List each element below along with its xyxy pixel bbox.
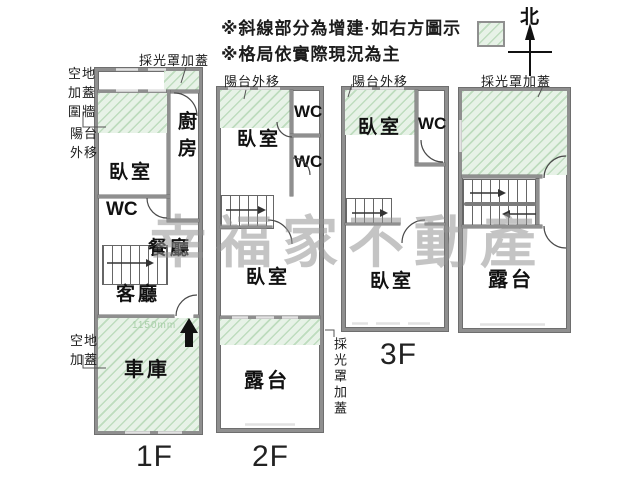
- stairs: [462, 179, 538, 227]
- room-label-garage: 車庫: [124, 353, 170, 382]
- note-hatched-addition: ※斜線部分為增建·如右方圖示: [221, 14, 461, 39]
- room-label-bedroom: 臥室: [109, 157, 153, 184]
- note-line: 空地: [68, 64, 96, 83]
- floor3-label: 3F: [380, 338, 417, 372]
- wall: [425, 223, 445, 225]
- floor1-balcony-hatch: [98, 93, 167, 133]
- north-arrow: [508, 23, 552, 76]
- wall: [536, 179, 539, 225]
- wall: [462, 175, 542, 178]
- stairs: [220, 195, 274, 229]
- wall: [167, 219, 199, 222]
- floorplan-page: { "notes": { "line1": "※斜線部分為增建·如右方圖示", …: [0, 0, 640, 480]
- note-line: 陽台: [70, 124, 98, 143]
- floor2-skylight-note: 採光罩加蓋: [330, 337, 349, 421]
- legend-hatch-swatch: [477, 21, 505, 47]
- note-line: 圍牆: [68, 102, 96, 121]
- note-line: 外移: [70, 143, 98, 162]
- room-label-dining: 餐廳: [148, 233, 192, 260]
- floor1-yard-note: 空地 加蓋: [70, 331, 98, 369]
- roof-skylight-hatch: [462, 91, 567, 175]
- wall: [415, 163, 445, 166]
- room-label-wc: WC: [294, 102, 322, 122]
- roof-plan: 露台: [459, 88, 570, 332]
- room-label-living: 客廳: [116, 279, 160, 306]
- room-label-bedroom: 臥室: [237, 124, 281, 151]
- note-line: 加蓋: [68, 83, 96, 102]
- north-label: 北: [520, 2, 539, 29]
- floor2-skylight-hatch: [220, 319, 320, 345]
- stairs: [345, 198, 392, 225]
- wall: [167, 90, 170, 222]
- floor2-label: 2F: [252, 440, 289, 474]
- note-line: 加蓋: [70, 350, 98, 369]
- wall: [290, 134, 320, 137]
- floor1-balcony-note: 陽台 外移: [70, 124, 98, 162]
- wall: [462, 225, 542, 228]
- room-label-bedroom: 臥室: [358, 112, 402, 139]
- room-label-bedroom: 臥室: [370, 266, 414, 293]
- room-label-kitchen: 廚房: [172, 111, 199, 165]
- room-label-bedroom: 臥室: [246, 262, 290, 289]
- floor2-plan: WC WC 臥室 臥室 露台: [217, 87, 323, 432]
- room-label-wc: WC: [294, 152, 322, 172]
- room-label-terrace: 露台: [488, 263, 534, 292]
- note-line: 空地: [70, 331, 98, 350]
- wall: [345, 223, 400, 225]
- room-label-wc: WC: [418, 114, 446, 134]
- floor1-wall-note: 空地 加蓋 圍牆: [68, 64, 96, 121]
- room-label-terrace: 露台: [244, 364, 290, 393]
- wall: [220, 226, 272, 228]
- wall: [98, 195, 170, 198]
- dimension-text: 1150mm: [132, 320, 176, 331]
- wall: [290, 90, 293, 196]
- floor1-label: 1F: [136, 440, 173, 474]
- room-label-wc: WC: [106, 199, 138, 221]
- floor1-skylight-note: 採光罩加蓋: [139, 51, 209, 70]
- floor1-skylight-hatch: [164, 71, 199, 90]
- note-layout-disclaimer: ※格局依實際現況為主: [221, 40, 401, 65]
- floor1-plan: 臥室 廚房 WC 餐廳 客廳 1150mm 車庫: [95, 68, 202, 434]
- floor3-plan: 臥室 WC 臥室: [342, 87, 448, 331]
- floor2-balcony-note: 陽台外移: [224, 72, 280, 91]
- roof-skylight-note: 採光罩加蓋: [481, 72, 551, 91]
- floor2-balcony-hatch: [220, 90, 290, 128]
- floor3-balcony-note: 陽台外移: [352, 72, 408, 91]
